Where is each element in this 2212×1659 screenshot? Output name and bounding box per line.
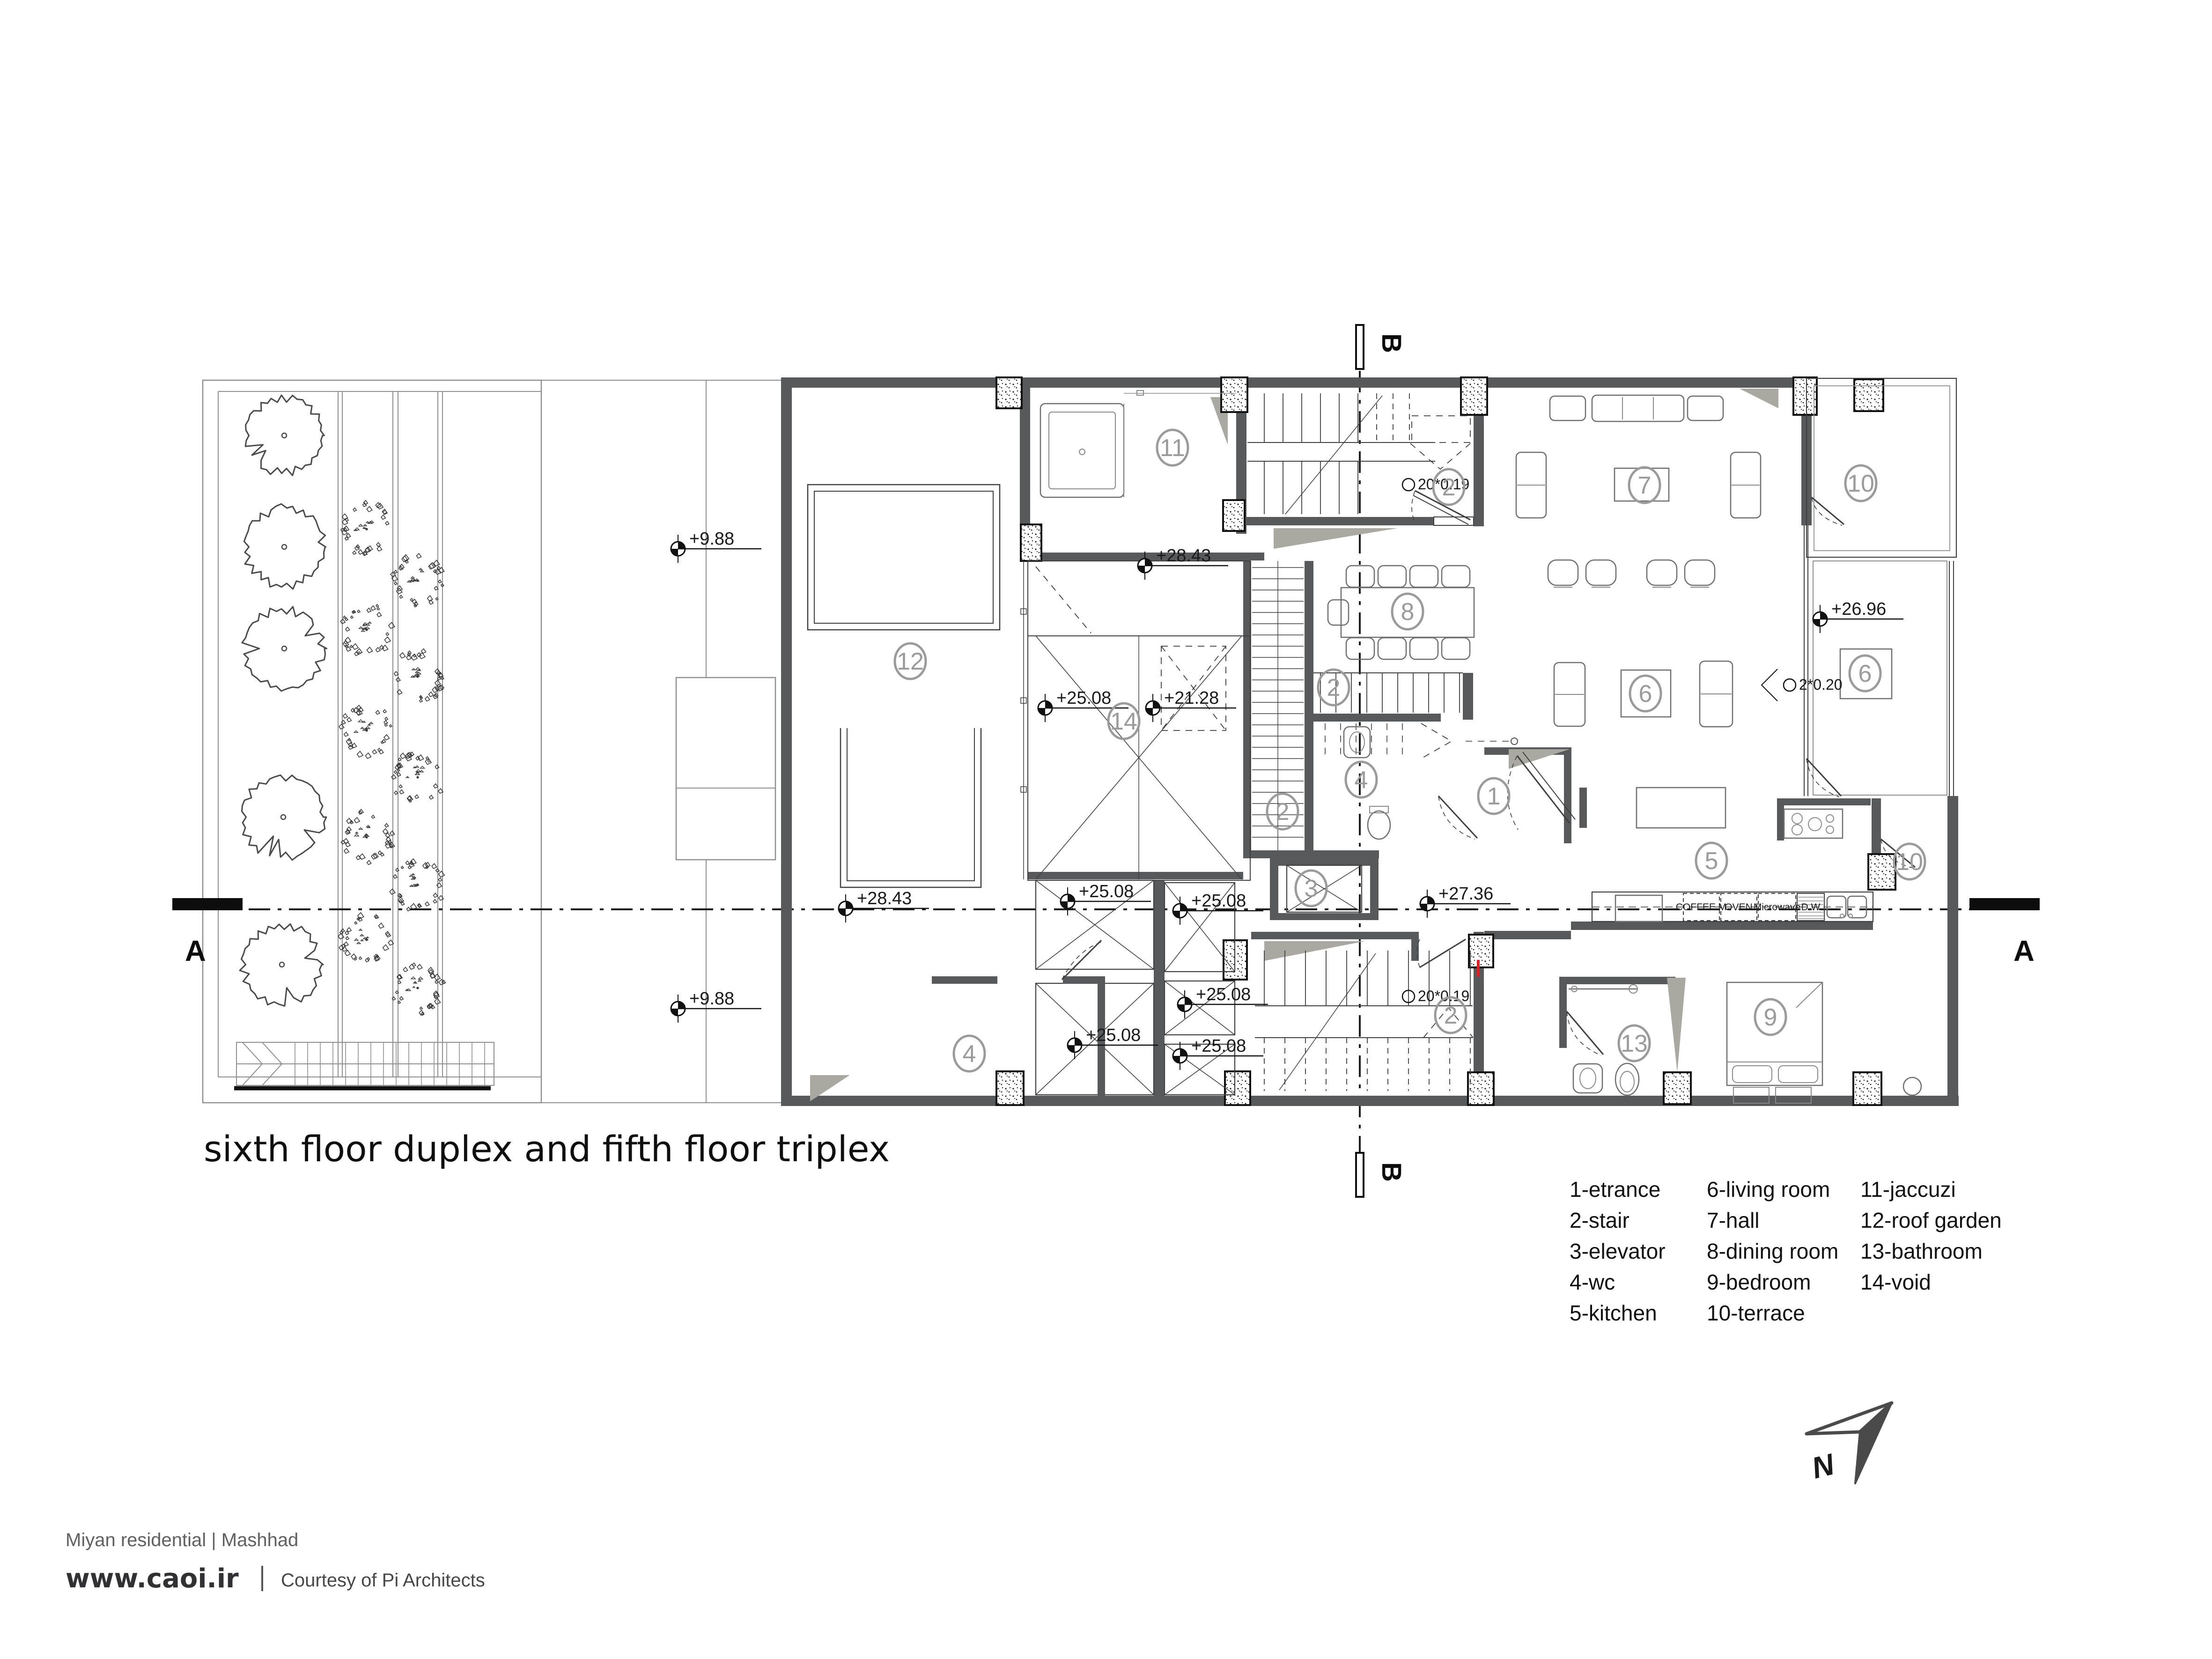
sofa-3seat [1592, 395, 1684, 421]
appliance-coffee: COFFEE.M [1676, 902, 1727, 913]
legend-item: 4-wc [1570, 1270, 1615, 1294]
room-number: 8 [1401, 598, 1415, 626]
living-right [1804, 525, 1958, 797]
room-number-labels: 11121427108224661351024139 [895, 430, 1925, 1071]
room-number: 7 [1638, 472, 1652, 499]
roof-garden-room-bands [808, 485, 1000, 887]
room-circle: 7 [1629, 467, 1660, 503]
legend-item: 11-jaccuzi [1860, 1177, 1956, 1202]
column [1793, 377, 1817, 415]
tub-chair [1586, 560, 1616, 587]
room-number: 2 [1276, 798, 1290, 826]
room-circle: 9 [1755, 999, 1786, 1035]
floor-lamp [1903, 1077, 1921, 1095]
legend: 1-etrance2-stair3-elevator4-wc5-kitchen6… [1570, 1177, 2002, 1325]
dining-chair [1378, 638, 1406, 659]
shrub-icon [391, 553, 444, 607]
column [1225, 1071, 1250, 1105]
room-circle: 2 [1435, 997, 1466, 1033]
room-number: 6 [1639, 680, 1652, 708]
legend-item: 12-roof garden [1860, 1208, 2002, 1232]
washbasin [1344, 727, 1370, 758]
room-circle: 8 [1392, 594, 1423, 629]
elevation-value: +25.08 [1056, 688, 1111, 708]
tub-chair [1685, 560, 1715, 587]
stair-annotation: 2*0.20 [1762, 669, 1843, 701]
appliance-dishwasher: D.W [1801, 902, 1821, 913]
section-marker-B-top [1356, 325, 1364, 369]
elevation-value: +25.08 [1079, 882, 1134, 901]
shrub-icon [340, 605, 394, 656]
room-number: 9 [1764, 1004, 1777, 1031]
elevation-marker: +25.08 [1178, 985, 1268, 1018]
room-circle: 1 [1478, 778, 1509, 814]
elevation-value: +25.08 [1196, 985, 1251, 1004]
legend-item: 7-hall [1707, 1208, 1760, 1232]
elevation-value: +21.28 [1164, 688, 1219, 708]
toilet [1368, 811, 1390, 839]
shrub-icon [394, 649, 444, 702]
elevation-value: +25.08 [1086, 1025, 1141, 1045]
elevation-marker: +25.08 [1173, 1036, 1263, 1070]
column [1221, 377, 1247, 412]
annotation-text: 2*0.20 [1799, 676, 1843, 693]
side-yard-strip [541, 380, 790, 1103]
room-number: 10 [1847, 470, 1874, 497]
elevation-marker: +27.36 [1420, 884, 1511, 918]
jaccuzi-tub [1040, 404, 1124, 497]
cooktop [1784, 809, 1843, 838]
tree-icon [242, 775, 326, 860]
column [1664, 1072, 1691, 1104]
column [1469, 935, 1493, 967]
footer-site: www.caoi.ir [66, 1563, 239, 1594]
pillow [1778, 1066, 1818, 1083]
legend-item: 14-void [1860, 1270, 1931, 1294]
footer: Miyan residential | Mashhad www.caoi.ir … [66, 1530, 485, 1594]
section-label-A-left: A [185, 935, 206, 967]
legend-item: 8-dining room [1707, 1239, 1838, 1263]
room-circle: 10 [1845, 465, 1876, 501]
shrub-icon [339, 705, 392, 759]
floor-plan-drawing: A A B B [0, 0, 2212, 1659]
north-arrow: N [1806, 1403, 1892, 1485]
garden-steps [234, 1042, 494, 1088]
appliance-microwave: Microwave [1754, 902, 1800, 913]
room-number: 13 [1621, 1030, 1648, 1057]
legend-item: 6-living room [1707, 1177, 1830, 1202]
shrub-icon [341, 501, 389, 556]
roof-garden-planting [203, 380, 541, 1103]
room-circle: 5 [1696, 843, 1727, 878]
room-circle: 3 [1296, 870, 1327, 906]
elevation-value: +26.96 [1831, 599, 1886, 619]
shrub-icon [341, 809, 395, 864]
kitchen-island [1637, 788, 1725, 828]
tub-chair [1548, 560, 1578, 587]
room-circle: 6 [1850, 656, 1880, 691]
room-number: 1 [1487, 783, 1501, 810]
room-circle: 2 [1318, 670, 1349, 705]
tree-icon [245, 395, 324, 475]
elevation-marker: +9.88 [671, 989, 761, 1023]
jaccuzi-room [1040, 391, 1236, 497]
elevation-value: +9.88 [689, 989, 734, 1009]
room-number: 11 [1160, 435, 1185, 462]
elevation-value: +25.08 [1191, 891, 1246, 911]
faucet-icon [1137, 391, 1143, 395]
shrub-icon [338, 913, 393, 962]
armchair [1688, 396, 1723, 420]
elevation-value: +25.08 [1191, 1036, 1246, 1056]
garden-outer-boundary [203, 380, 541, 1103]
legend-item: 9-bedroom [1707, 1270, 1811, 1294]
column [1223, 500, 1245, 531]
kitchen: COFFEE.M OVEN Microwave D.W [1592, 788, 1915, 922]
elevation-value: +28.43 [857, 889, 912, 908]
legend-item: 1-etrance [1570, 1177, 1660, 1202]
column [996, 377, 1022, 408]
shrub-icon [391, 752, 443, 802]
elevation-marker: +25.08 [1061, 882, 1151, 915]
room-circle: 11 [1157, 430, 1188, 465]
shrubs [338, 501, 445, 1016]
room-number: 3 [1305, 875, 1318, 902]
legend-item: 3-elevator [1570, 1239, 1666, 1263]
column [1021, 524, 1041, 561]
toilet [1615, 1063, 1639, 1095]
column [1468, 1072, 1494, 1105]
room-number: 10 [1896, 848, 1923, 876]
armchair [1550, 396, 1585, 420]
room-circle: 2 [1267, 794, 1298, 829]
elevation-marker: +21.28 [1146, 688, 1236, 722]
elevation-value: +9.88 [689, 529, 734, 549]
dining-chair [1410, 566, 1438, 587]
room-number: 5 [1705, 848, 1718, 875]
room-number: 6 [1858, 660, 1872, 687]
room-number: 12 [897, 648, 924, 675]
legend-item: 10-terrace [1707, 1301, 1805, 1325]
drawing-title: sixth floor duplex and fifth floor tripl… [204, 1128, 890, 1170]
column [996, 1071, 1024, 1105]
dining-chair [1442, 638, 1470, 659]
room-number: 2 [1442, 474, 1456, 501]
tub-chair [1647, 560, 1677, 587]
room-circle: 6 [1630, 676, 1661, 711]
footer-credit: Courtesy of Pi Architects [281, 1570, 485, 1591]
elevation-value: +28.43 [1156, 546, 1211, 566]
elevation-marker: +28.43 [839, 889, 929, 922]
dining-chair [1442, 566, 1470, 587]
legend-item: 13-bathroom [1860, 1239, 1983, 1263]
section-marker-A-left [172, 898, 243, 910]
room-number: 4 [1355, 767, 1368, 794]
pillow [1733, 1066, 1772, 1083]
bay-projection [676, 678, 775, 860]
north-label: N [1808, 1447, 1838, 1485]
legend-item: 2-stair [1570, 1208, 1630, 1232]
elevation-value: +27.36 [1438, 884, 1493, 904]
room-number: 4 [963, 1040, 976, 1068]
appliance-oven: OVEN [1725, 902, 1753, 913]
dining-chair-end [1328, 600, 1349, 625]
tree-icon [244, 504, 325, 589]
section-marker-B-bottom [1356, 1153, 1364, 1197]
column [1853, 1072, 1881, 1105]
room-circle: 12 [895, 643, 926, 679]
elevation-marker: +9.88 [671, 529, 761, 563]
elevation-marker: +28.43 [1138, 546, 1228, 580]
elevation-marker: +25.08 [1173, 891, 1263, 925]
dining-chair [1378, 566, 1406, 587]
room-number: 14 [1110, 708, 1137, 735]
column [1461, 377, 1487, 415]
tree-icon [240, 924, 323, 1006]
elevator [1287, 865, 1362, 912]
section-label-B-top: B [1376, 333, 1407, 353]
tree-icon [242, 607, 327, 691]
section-label-B-bottom: B [1376, 1162, 1407, 1182]
elevation-marker: +25.08 [1068, 1025, 1158, 1059]
dining-chair [1410, 638, 1438, 659]
section-label-A-right: A [2013, 935, 2035, 967]
room-number: 2 [1327, 674, 1341, 701]
legend-item: 5-kitchen [1570, 1301, 1657, 1325]
room-circle: 14 [1108, 703, 1139, 739]
elevation-marker: +26.96 [1813, 599, 1903, 633]
room-circle: 10 [1894, 844, 1925, 879]
trees [240, 395, 327, 1006]
footer-project: Miyan residential | Mashhad [66, 1530, 298, 1550]
section-marker-A-right [1969, 898, 2040, 910]
room-circle: 13 [1619, 1025, 1650, 1061]
column [1868, 854, 1895, 890]
room-number: 2 [1444, 1002, 1458, 1029]
room-circle: 4 [954, 1036, 985, 1071]
column [1854, 379, 1883, 411]
bedroom [1727, 982, 1921, 1103]
room-circle: 4 [1346, 762, 1377, 797]
